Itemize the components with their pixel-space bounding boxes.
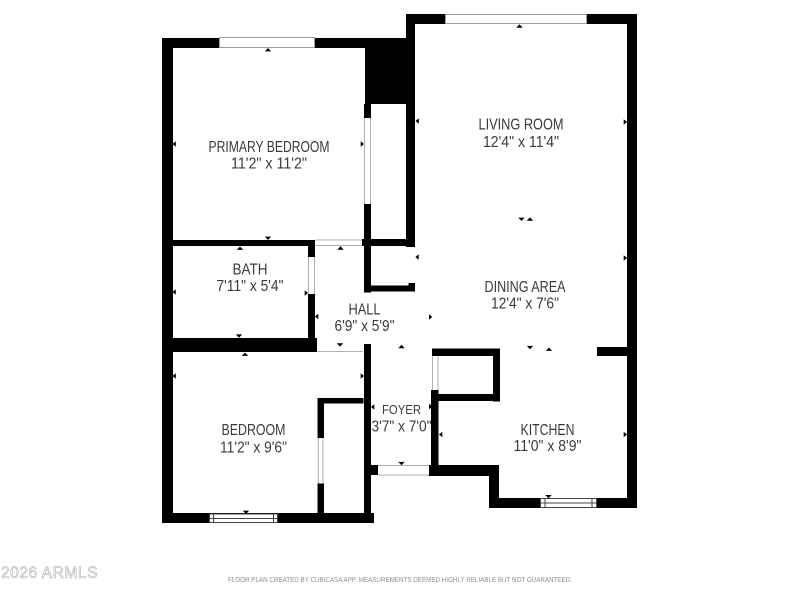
svg-text:3'7" x 7'0": 3'7" x 7'0"	[372, 419, 432, 436]
svg-text:BEDROOM: BEDROOM	[222, 422, 286, 439]
svg-text:6'9" x 5'9": 6'9" x 5'9"	[335, 318, 395, 335]
svg-text:DINING AREA: DINING AREA	[485, 279, 567, 296]
svg-text:11'2" x 11'2": 11'2" x 11'2"	[231, 156, 307, 173]
svg-text:2026 ARMLS: 2026 ARMLS	[1, 564, 98, 582]
svg-text:LIVING ROOM: LIVING ROOM	[479, 117, 564, 134]
svg-text:KITCHEN: KITCHEN	[521, 422, 575, 439]
svg-text:PRIMARY BEDROOM: PRIMARY BEDROOM	[209, 139, 330, 156]
svg-text:12'4" x 11'4": 12'4" x 11'4"	[483, 134, 559, 151]
svg-text:FOYER: FOYER	[382, 403, 421, 417]
svg-text:7'11" x 5'4": 7'11" x 5'4"	[217, 278, 284, 295]
svg-text:11'0" x 8'9": 11'0" x 8'9"	[514, 438, 582, 455]
svg-text:HALL: HALL	[349, 302, 381, 319]
svg-text:FLOOR PLAN CREATED BY CUBICASA: FLOOR PLAN CREATED BY CUBICASA APP. MEAS…	[228, 575, 572, 584]
svg-text:11'2" x 9'6": 11'2" x 9'6"	[220, 440, 287, 457]
svg-text:BATH: BATH	[233, 262, 268, 279]
svg-text:12'4" x 7'6": 12'4" x 7'6"	[491, 296, 559, 313]
